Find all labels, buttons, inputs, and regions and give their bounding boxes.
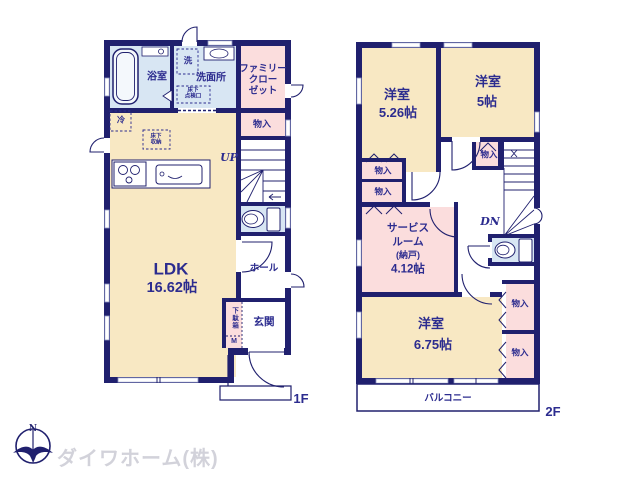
compass-n-label: N [29,425,37,435]
stairs-up-label: UP [220,152,238,164]
room-label-hall: ホール [250,264,279,274]
storage-label-2f-left1: 物入 [374,166,391,175]
fridge-label: 冷 [117,117,125,126]
stairs-2f [504,150,534,236]
service-room-line3: (納戸) [396,251,420,261]
balcony-label: バルコニー [424,394,471,404]
bath-counter-icon [142,47,168,56]
stairs-1f [241,150,285,202]
kitchen-icon [112,160,210,188]
floorplan-lineart [0,0,640,480]
storage-label-2f-left2: 物入 [374,187,391,196]
service-room-line2: ルーム [392,237,423,249]
vanity-sink-icon [204,47,234,60]
floor1-label: 1F [293,392,308,406]
room-label-bedroom-b: 洋室 [475,75,501,89]
room-label-entrance: 玄関 [254,317,275,329]
room-label-family-closet: ファミリー クロー ゼット [239,65,287,98]
storage-label-2f-right2: 物入 [511,348,528,357]
stairs-down-label: DN [480,216,500,228]
room-label-washroom: 洗面所 [196,73,226,84]
service-room-line1: サービス [387,223,429,235]
floorplan: 浴室 洗 洗面所 床下 点検口 ファミリー クロー ゼット 冷 床下 収納 物入… [0,0,640,480]
room-label-bedroom-a: 洋室 [384,88,410,102]
room-size-bedroom-c: 6.75帖 [414,338,452,352]
room-size-ldk: 16.62帖 [147,281,198,297]
service-room-line4: 4.12帖 [391,264,425,277]
storage-label-1f: 物入 [253,120,271,130]
shoebox-size-label: M [231,338,237,346]
room-label-bath: 浴室 [147,72,167,83]
room-label-ldk: LDK [154,261,189,280]
room-size-bedroom-b: 5帖 [477,95,497,109]
underfloor-storage-label: 床下 収納 [150,134,161,147]
room-size-bedroom-a: 5.26帖 [379,106,417,120]
storage-label-2f-mid: 物入 [480,150,497,159]
shoebox-label: 下駄箱 [230,307,237,330]
underfloor-access-label: 床下 点検口 [185,88,202,101]
room-label-bedroom-c: 洋室 [418,317,444,331]
company-logo-text: ダイワホーム(株) [57,442,219,471]
storage-label-2f-right1: 物入 [511,299,528,308]
washer-label: 洗 [184,56,193,65]
bathtub-icon [113,49,138,104]
floor2-label: 2F [545,405,560,419]
